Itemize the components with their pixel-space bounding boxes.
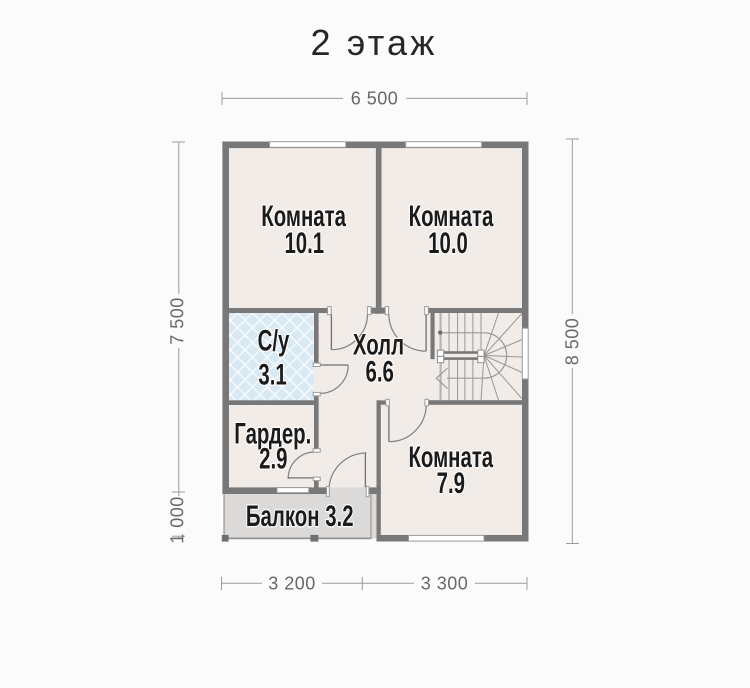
svg-text:6 500: 6 500 [351,88,399,108]
svg-text:С/у: С/у [258,325,290,358]
svg-text:10.1: 10.1 [284,227,324,260]
svg-text:2.9: 2.9 [259,443,287,476]
svg-text:6.6: 6.6 [366,356,394,389]
svg-text:Балкон 3.2: Балкон 3.2 [246,500,354,533]
svg-text:10.0: 10.0 [428,227,468,260]
svg-text:3 200: 3 200 [268,573,316,593]
svg-text:3 300: 3 300 [421,573,469,593]
svg-text:3.1: 3.1 [258,359,286,392]
svg-text:2 этаж: 2 этаж [311,22,438,63]
svg-text:7.9: 7.9 [437,467,465,500]
svg-text:7 500: 7 500 [167,297,187,345]
svg-text:8 500: 8 500 [562,318,582,366]
svg-text:1 000: 1 000 [167,496,187,544]
